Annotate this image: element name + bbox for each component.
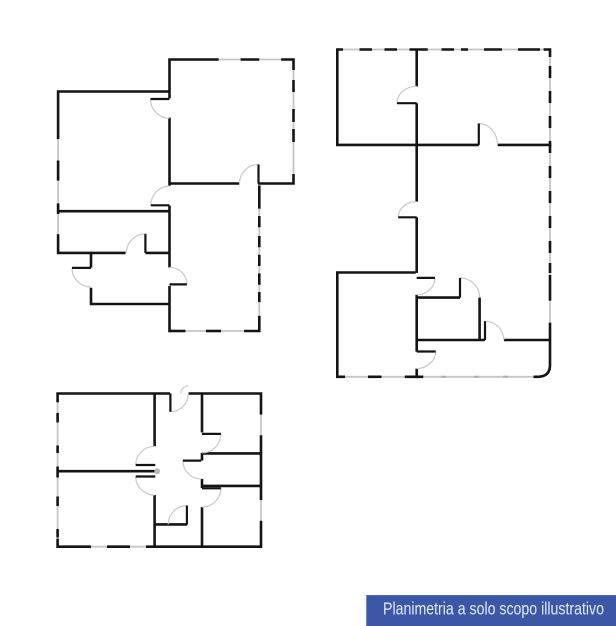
svg-text:Planimetria a solo scopo illus: Planimetria a solo scopo illustrativo [383,599,604,619]
